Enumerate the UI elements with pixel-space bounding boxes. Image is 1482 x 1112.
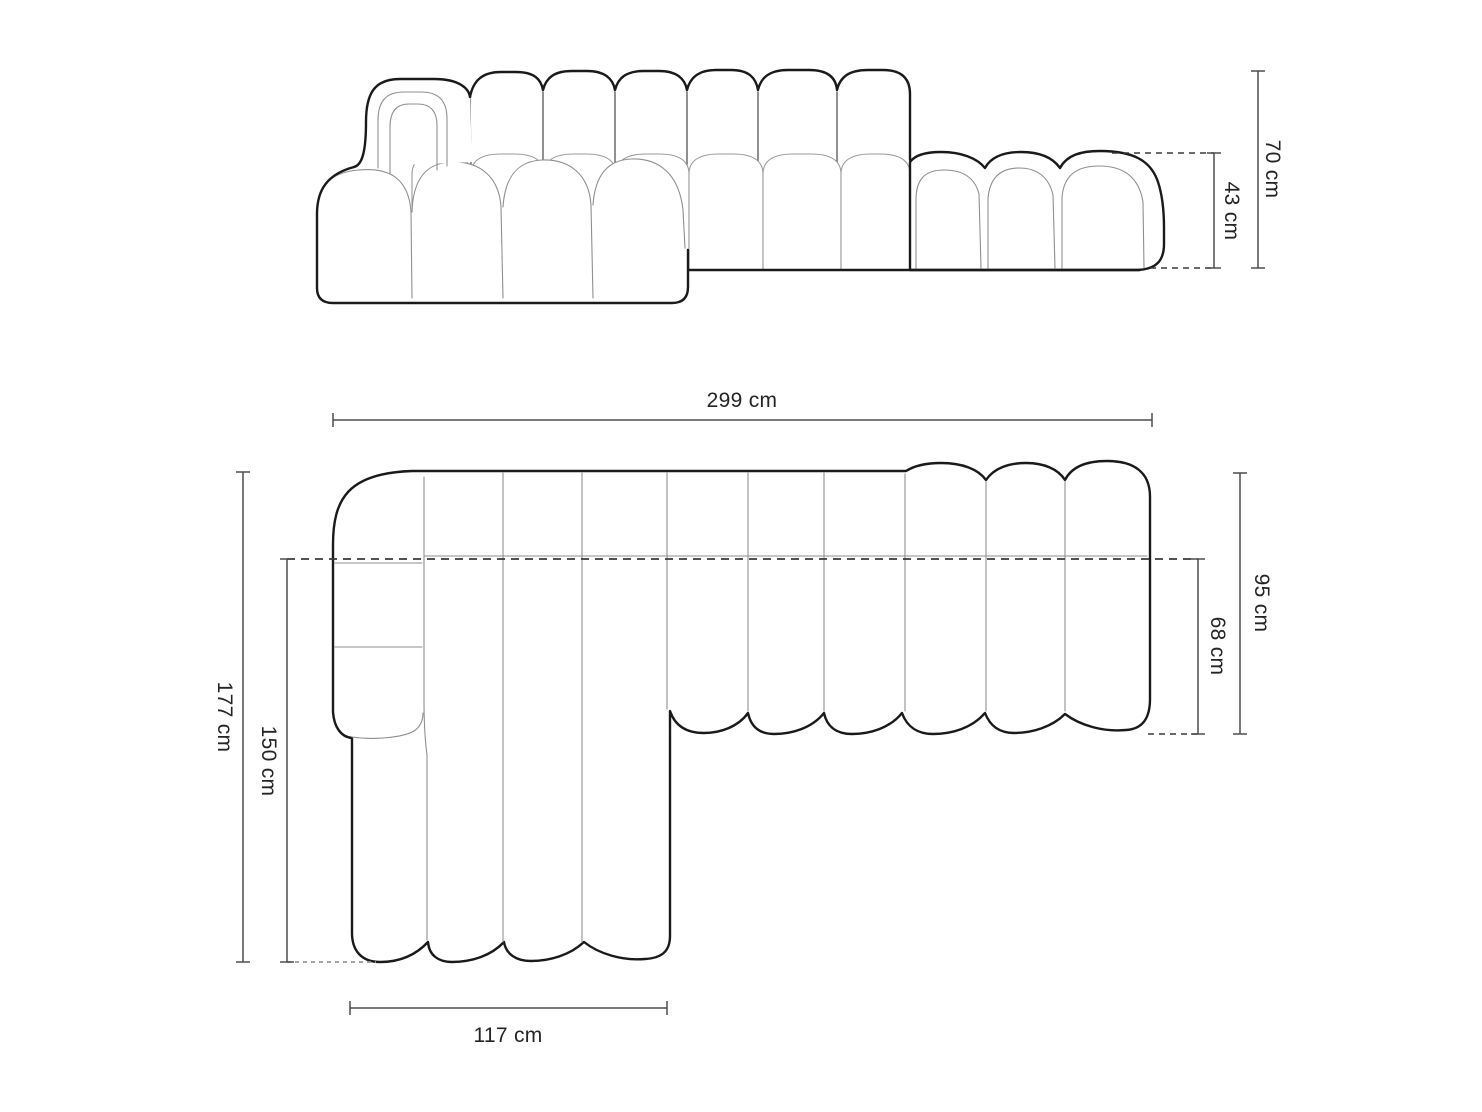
dimension-label-total-width: 299 cm <box>707 389 778 413</box>
dimension-label-seat-height: 43 cm <box>1219 182 1243 241</box>
dimension-label-chaise-depth: 150 cm <box>256 726 280 797</box>
top-outline <box>333 461 1150 962</box>
dim-line-95cm <box>1233 473 1247 734</box>
top-view <box>236 413 1247 1015</box>
dim-line-68cm <box>1191 559 1205 734</box>
sofa-dimension-drawing: 70 cm 43 cm 299 cm 177 cm 150 cm 117 cm … <box>0 0 1482 1112</box>
dim-line-177cm <box>236 472 250 962</box>
dimension-label-total-height: 70 cm <box>1260 140 1284 199</box>
dim-line-299cm <box>333 413 1152 427</box>
front-bench-outline <box>910 151 1164 270</box>
dimension-label-side-depth: 95 cm <box>1249 574 1273 633</box>
dimension-label-chaise-width: 117 cm <box>473 1024 542 1048</box>
dimension-label-seat-depth: 68 cm <box>1205 617 1229 676</box>
front-view <box>317 70 1265 303</box>
dim-line-117cm <box>350 1001 667 1015</box>
dimension-label-total-depth: 177 cm <box>212 682 236 753</box>
dim-line-150cm <box>280 559 294 962</box>
